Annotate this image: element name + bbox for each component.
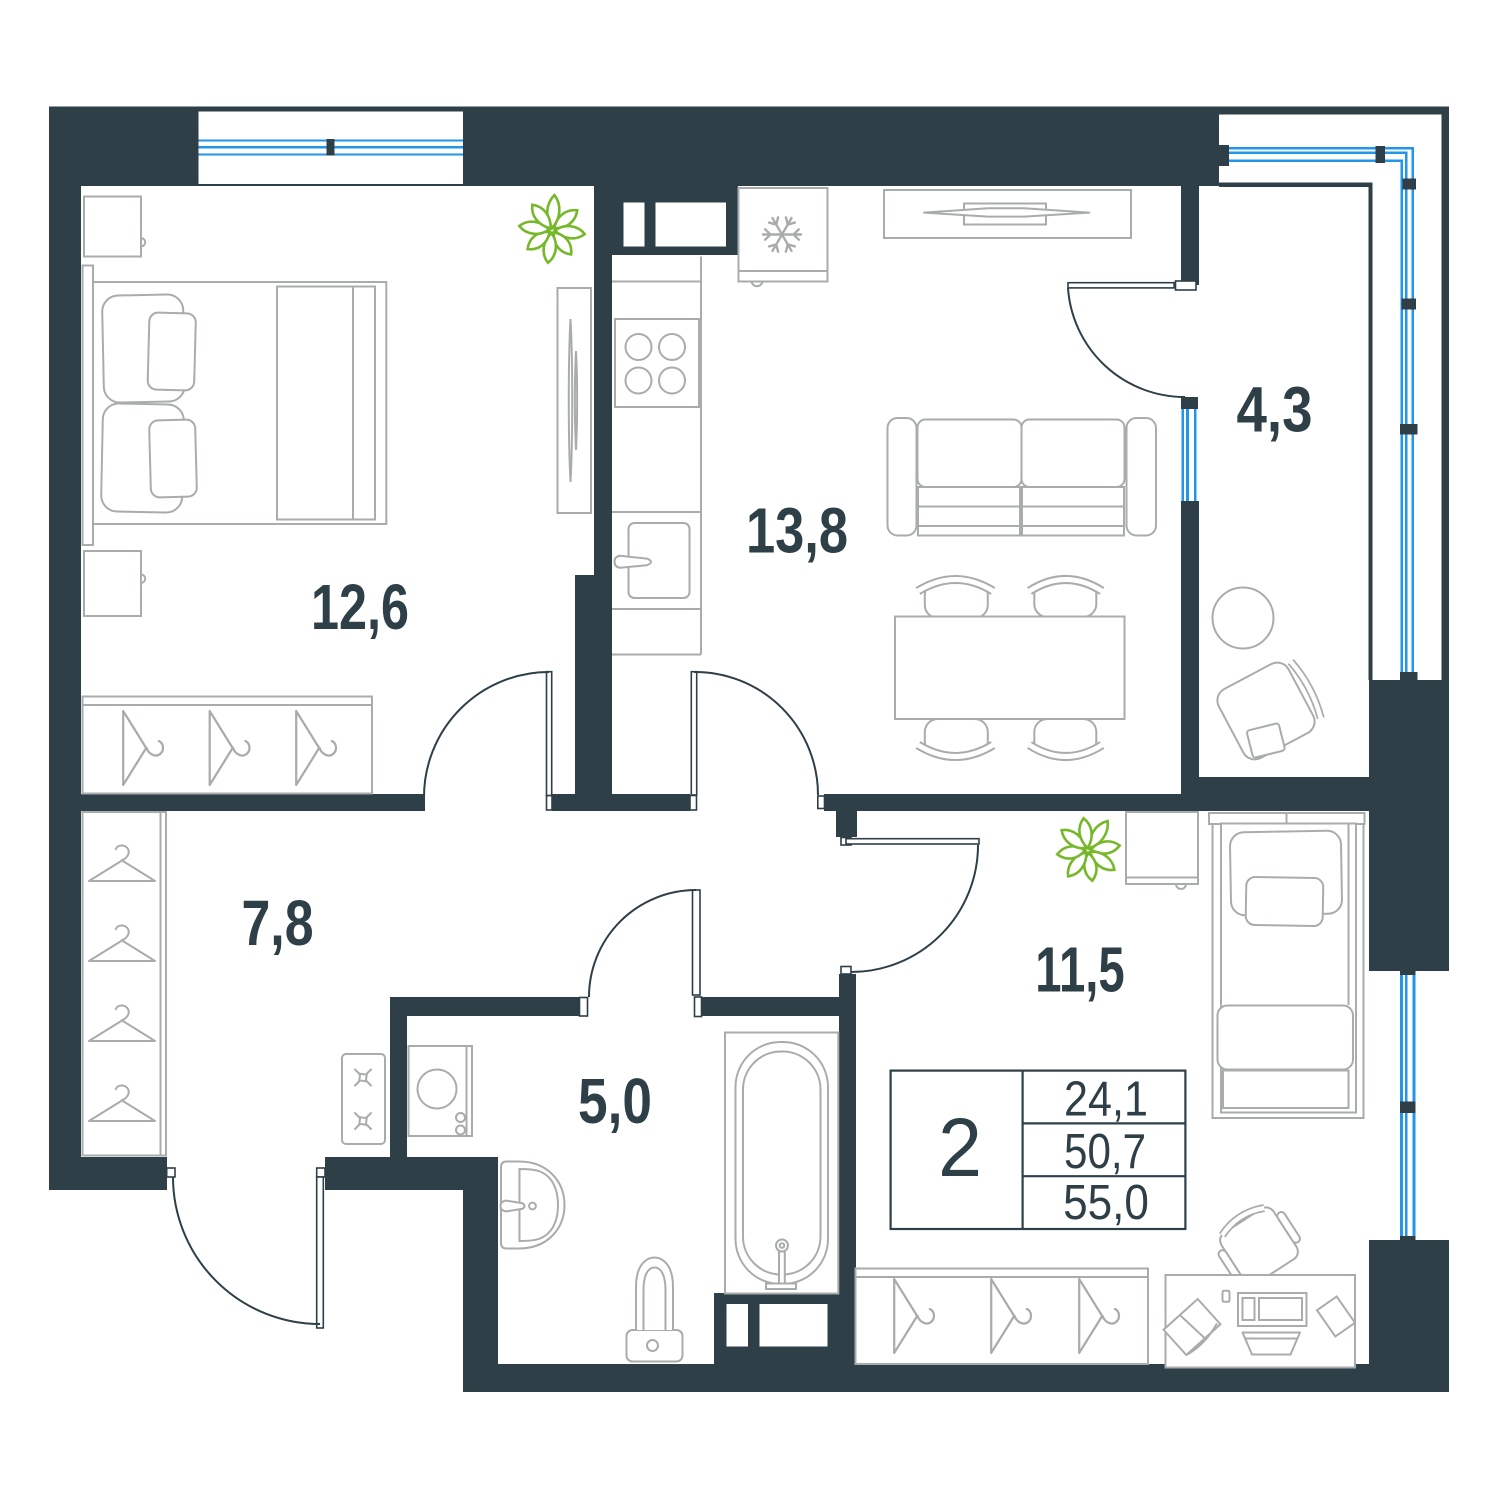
svg-text:4,3: 4,3 [1237,373,1313,445]
svg-text:5,0: 5,0 [578,1066,652,1137]
svg-text:2: 2 [938,1102,982,1194]
svg-text:7,8: 7,8 [241,888,313,959]
svg-text:13,8: 13,8 [746,496,848,567]
svg-text:24,1: 24,1 [1064,1071,1148,1126]
svg-text:12,6: 12,6 [311,572,409,643]
svg-text:55,0: 55,0 [1063,1175,1149,1230]
svg-text:50,7: 50,7 [1064,1124,1146,1179]
svg-text:11,5: 11,5 [1035,933,1124,1005]
